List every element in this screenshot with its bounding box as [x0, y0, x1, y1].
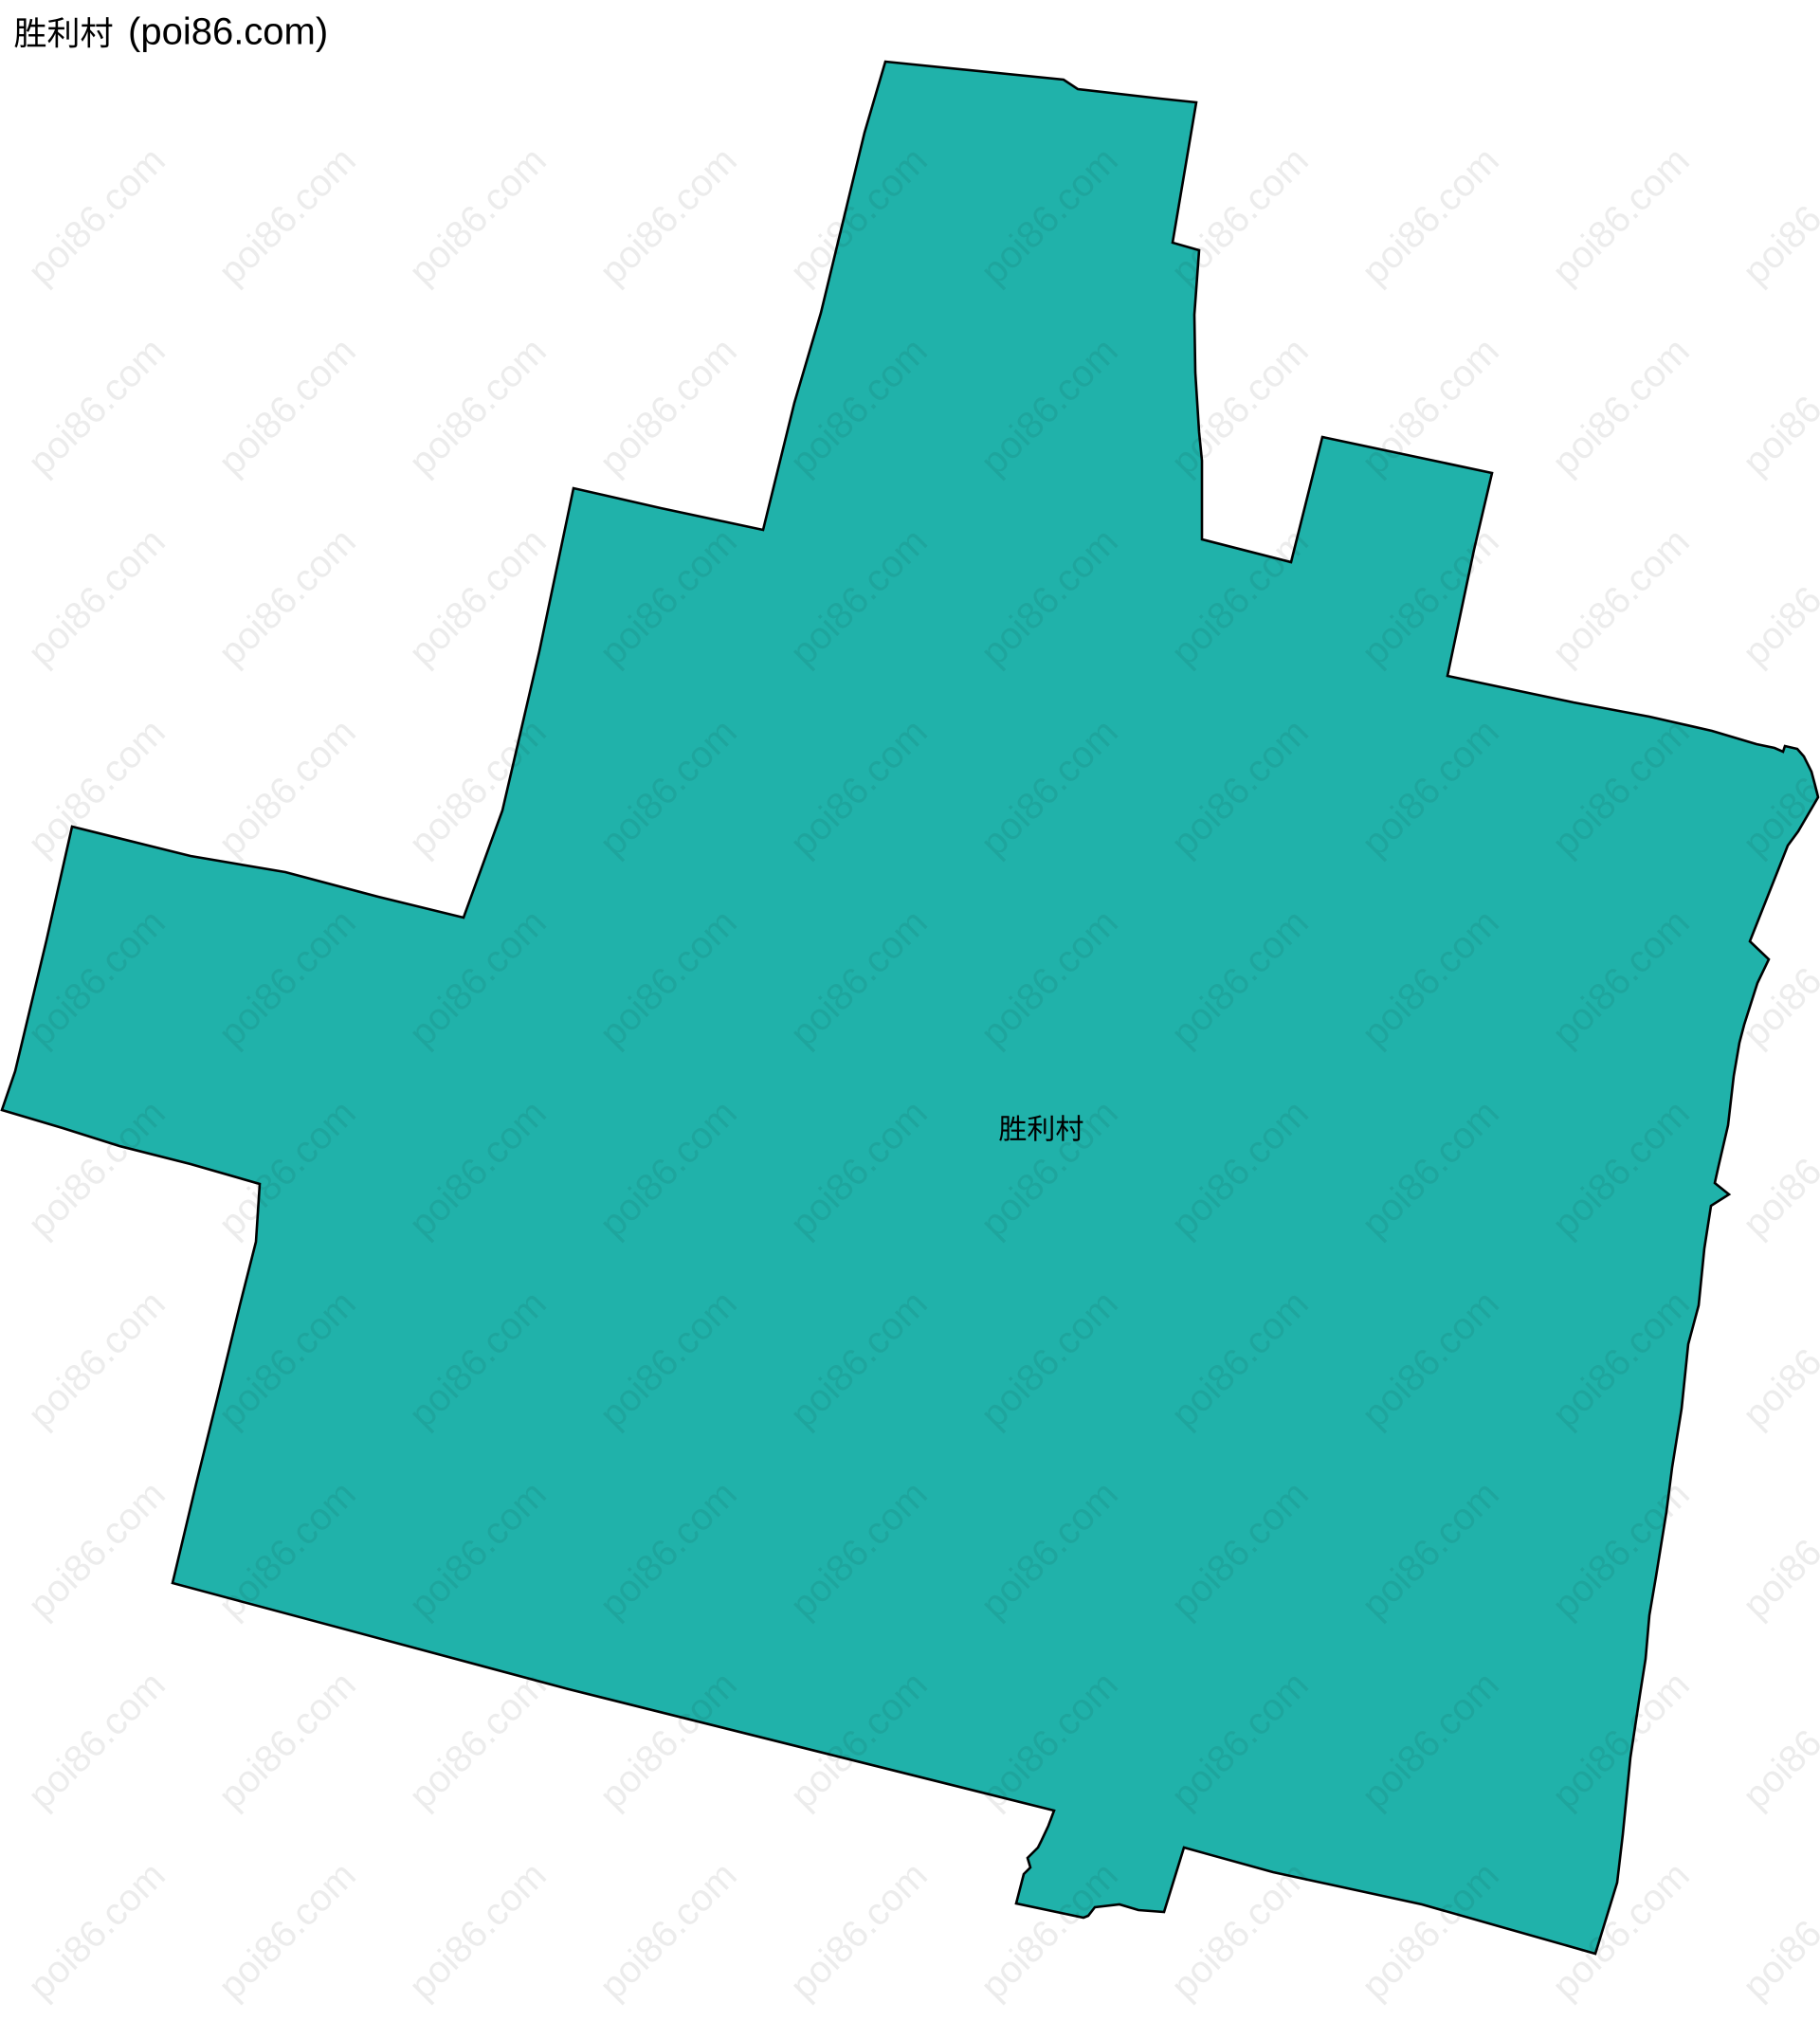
svg-text:(poi86.com): (poi86.com): [128, 11, 328, 53]
